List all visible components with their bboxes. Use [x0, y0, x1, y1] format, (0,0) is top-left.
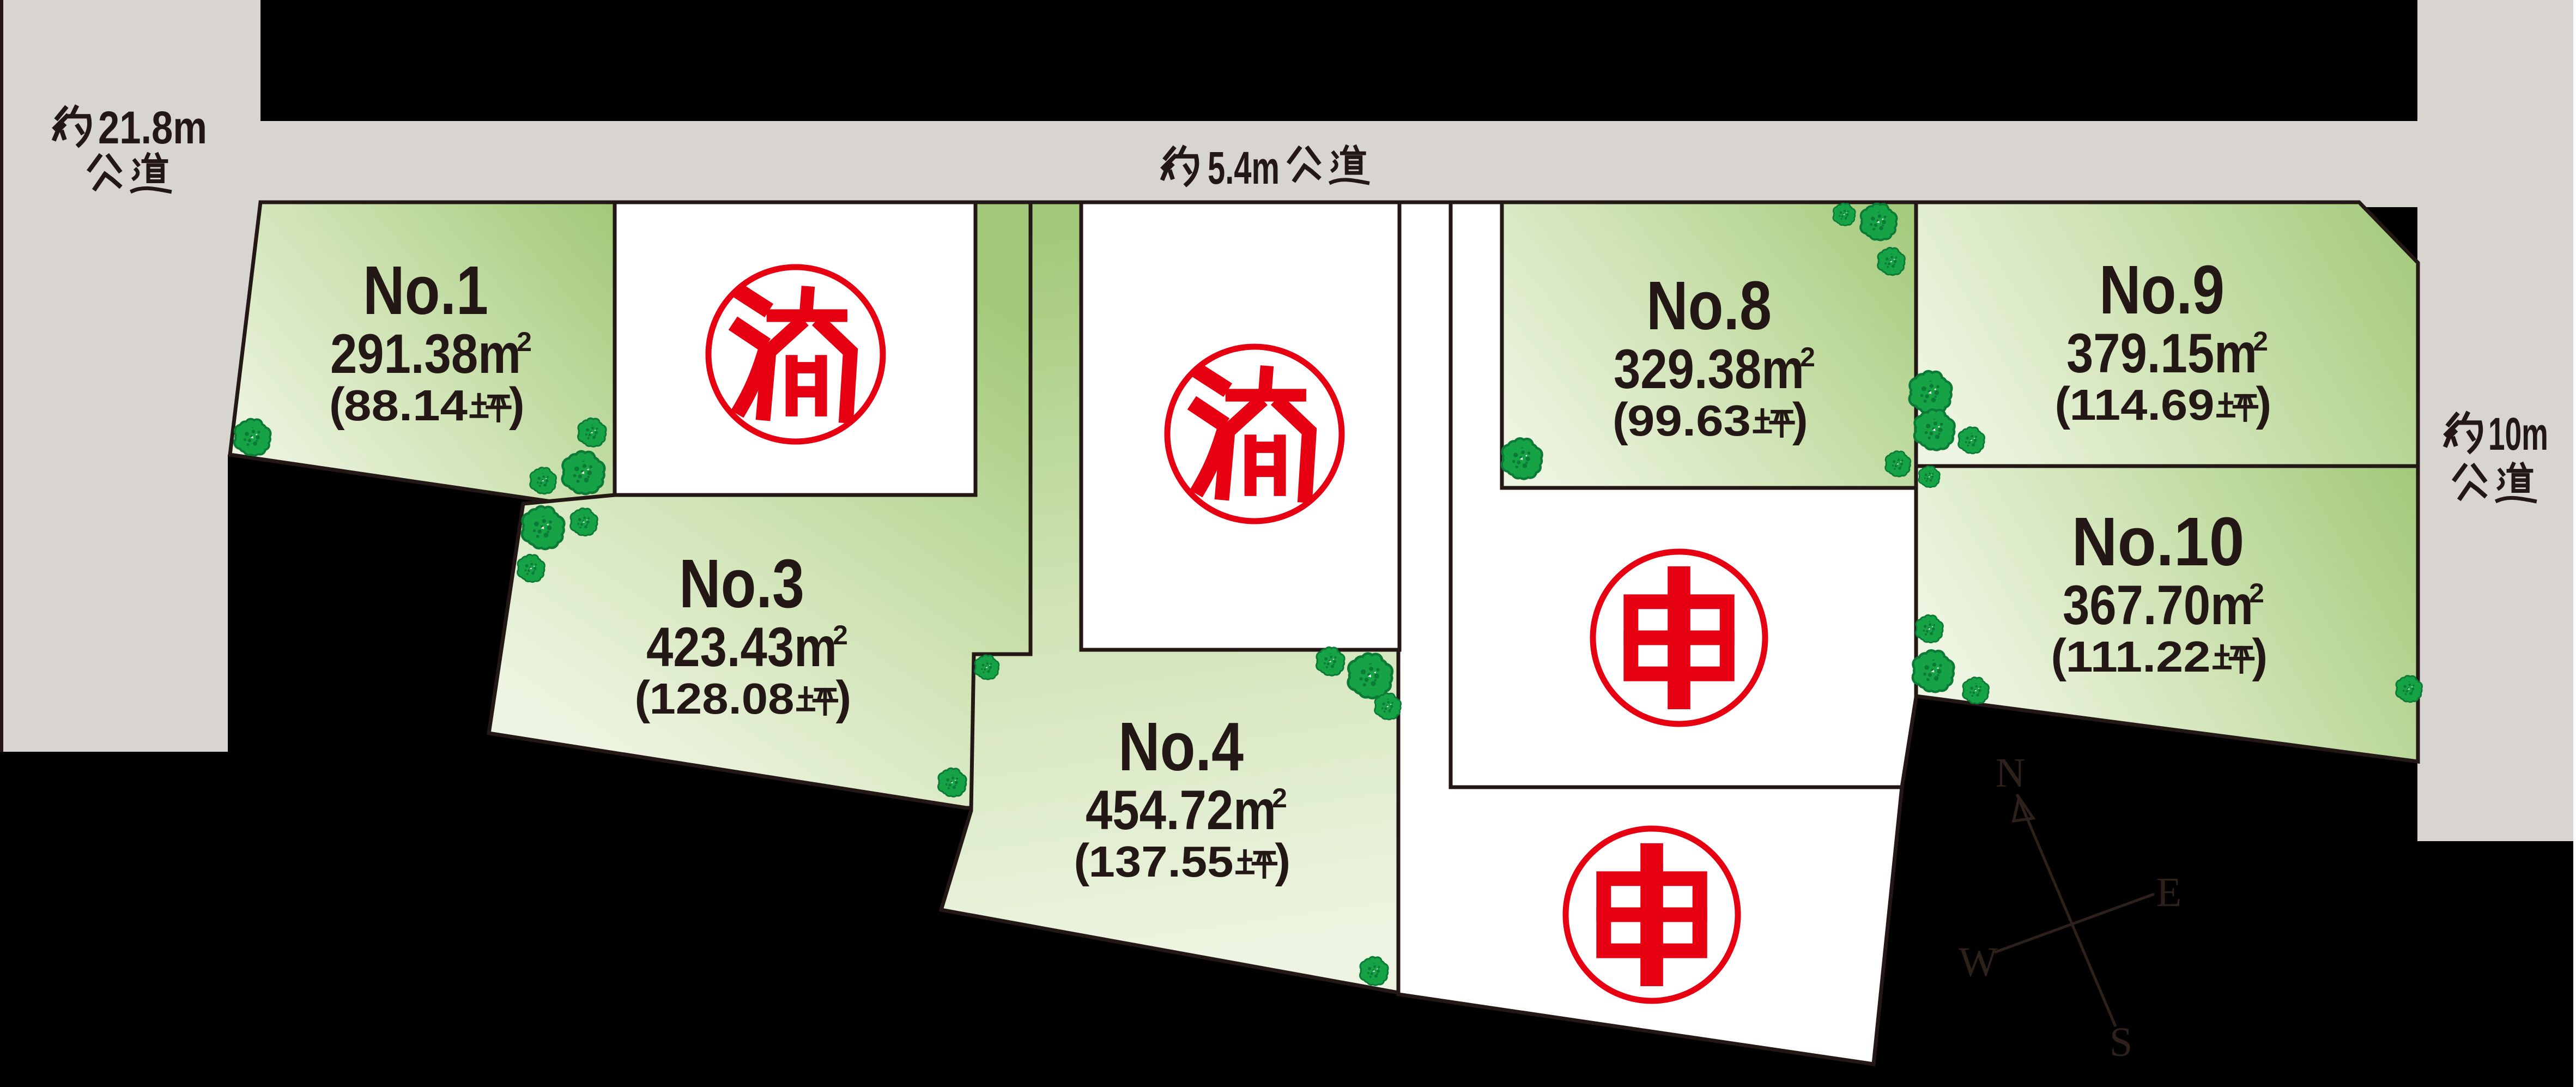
svg-text:(: ( — [1613, 394, 1628, 446]
svg-text:111.22: 111.22 — [2066, 632, 2211, 681]
svg-text:423.43m: 423.43m — [646, 616, 837, 678]
svg-text:137.55: 137.55 — [1089, 837, 1234, 886]
svg-text:(: ( — [2055, 378, 2071, 430]
svg-text:329.38m: 329.38m — [1614, 338, 1804, 400]
svg-text:99.63: 99.63 — [1627, 396, 1751, 445]
svg-text:No.8: No.8 — [1646, 267, 1772, 344]
svg-text:379.15m: 379.15m — [2066, 322, 2257, 384]
svg-text:W: W — [1959, 939, 1998, 985]
svg-text:N: N — [1996, 750, 2026, 796]
svg-text:114.69: 114.69 — [2070, 381, 2215, 429]
svg-text:21.8m: 21.8m — [98, 102, 207, 153]
svg-text:128.08: 128.08 — [650, 674, 795, 723]
svg-text:(: ( — [635, 672, 651, 724]
svg-text:): ) — [2252, 630, 2268, 682]
svg-text:2: 2 — [1272, 783, 1287, 813]
svg-text:(: ( — [2051, 630, 2067, 682]
svg-text:No.10: No.10 — [2072, 503, 2245, 580]
svg-text:): ) — [1275, 835, 1291, 887]
svg-text:10m: 10m — [2488, 408, 2548, 460]
svg-text:88.14: 88.14 — [344, 381, 468, 430]
svg-text:(: ( — [329, 378, 345, 431]
svg-text:291.38m: 291.38m — [330, 323, 521, 385]
svg-text:No.9: No.9 — [2099, 251, 2225, 328]
svg-text:2: 2 — [2249, 578, 2264, 608]
svg-text:367.70m: 367.70m — [2063, 574, 2253, 636]
svg-text:No.4: No.4 — [1118, 708, 1244, 785]
svg-text:): ) — [509, 378, 525, 431]
svg-text:No.1: No.1 — [363, 252, 488, 329]
svg-text:5.4m: 5.4m — [1208, 142, 1280, 194]
svg-text:): ) — [2256, 378, 2272, 430]
svg-text:): ) — [836, 672, 852, 724]
svg-text:E: E — [2156, 869, 2181, 915]
svg-text:2: 2 — [2253, 326, 2268, 357]
svg-text:2: 2 — [833, 620, 848, 650]
svg-text:2: 2 — [1800, 342, 1815, 372]
svg-text:454.72m: 454.72m — [1086, 779, 1276, 841]
svg-text:): ) — [1792, 394, 1808, 446]
svg-text:(: ( — [1074, 835, 1090, 887]
svg-text:2: 2 — [517, 327, 532, 357]
svg-text:No.3: No.3 — [679, 545, 804, 622]
svg-text:S: S — [2110, 1019, 2132, 1065]
